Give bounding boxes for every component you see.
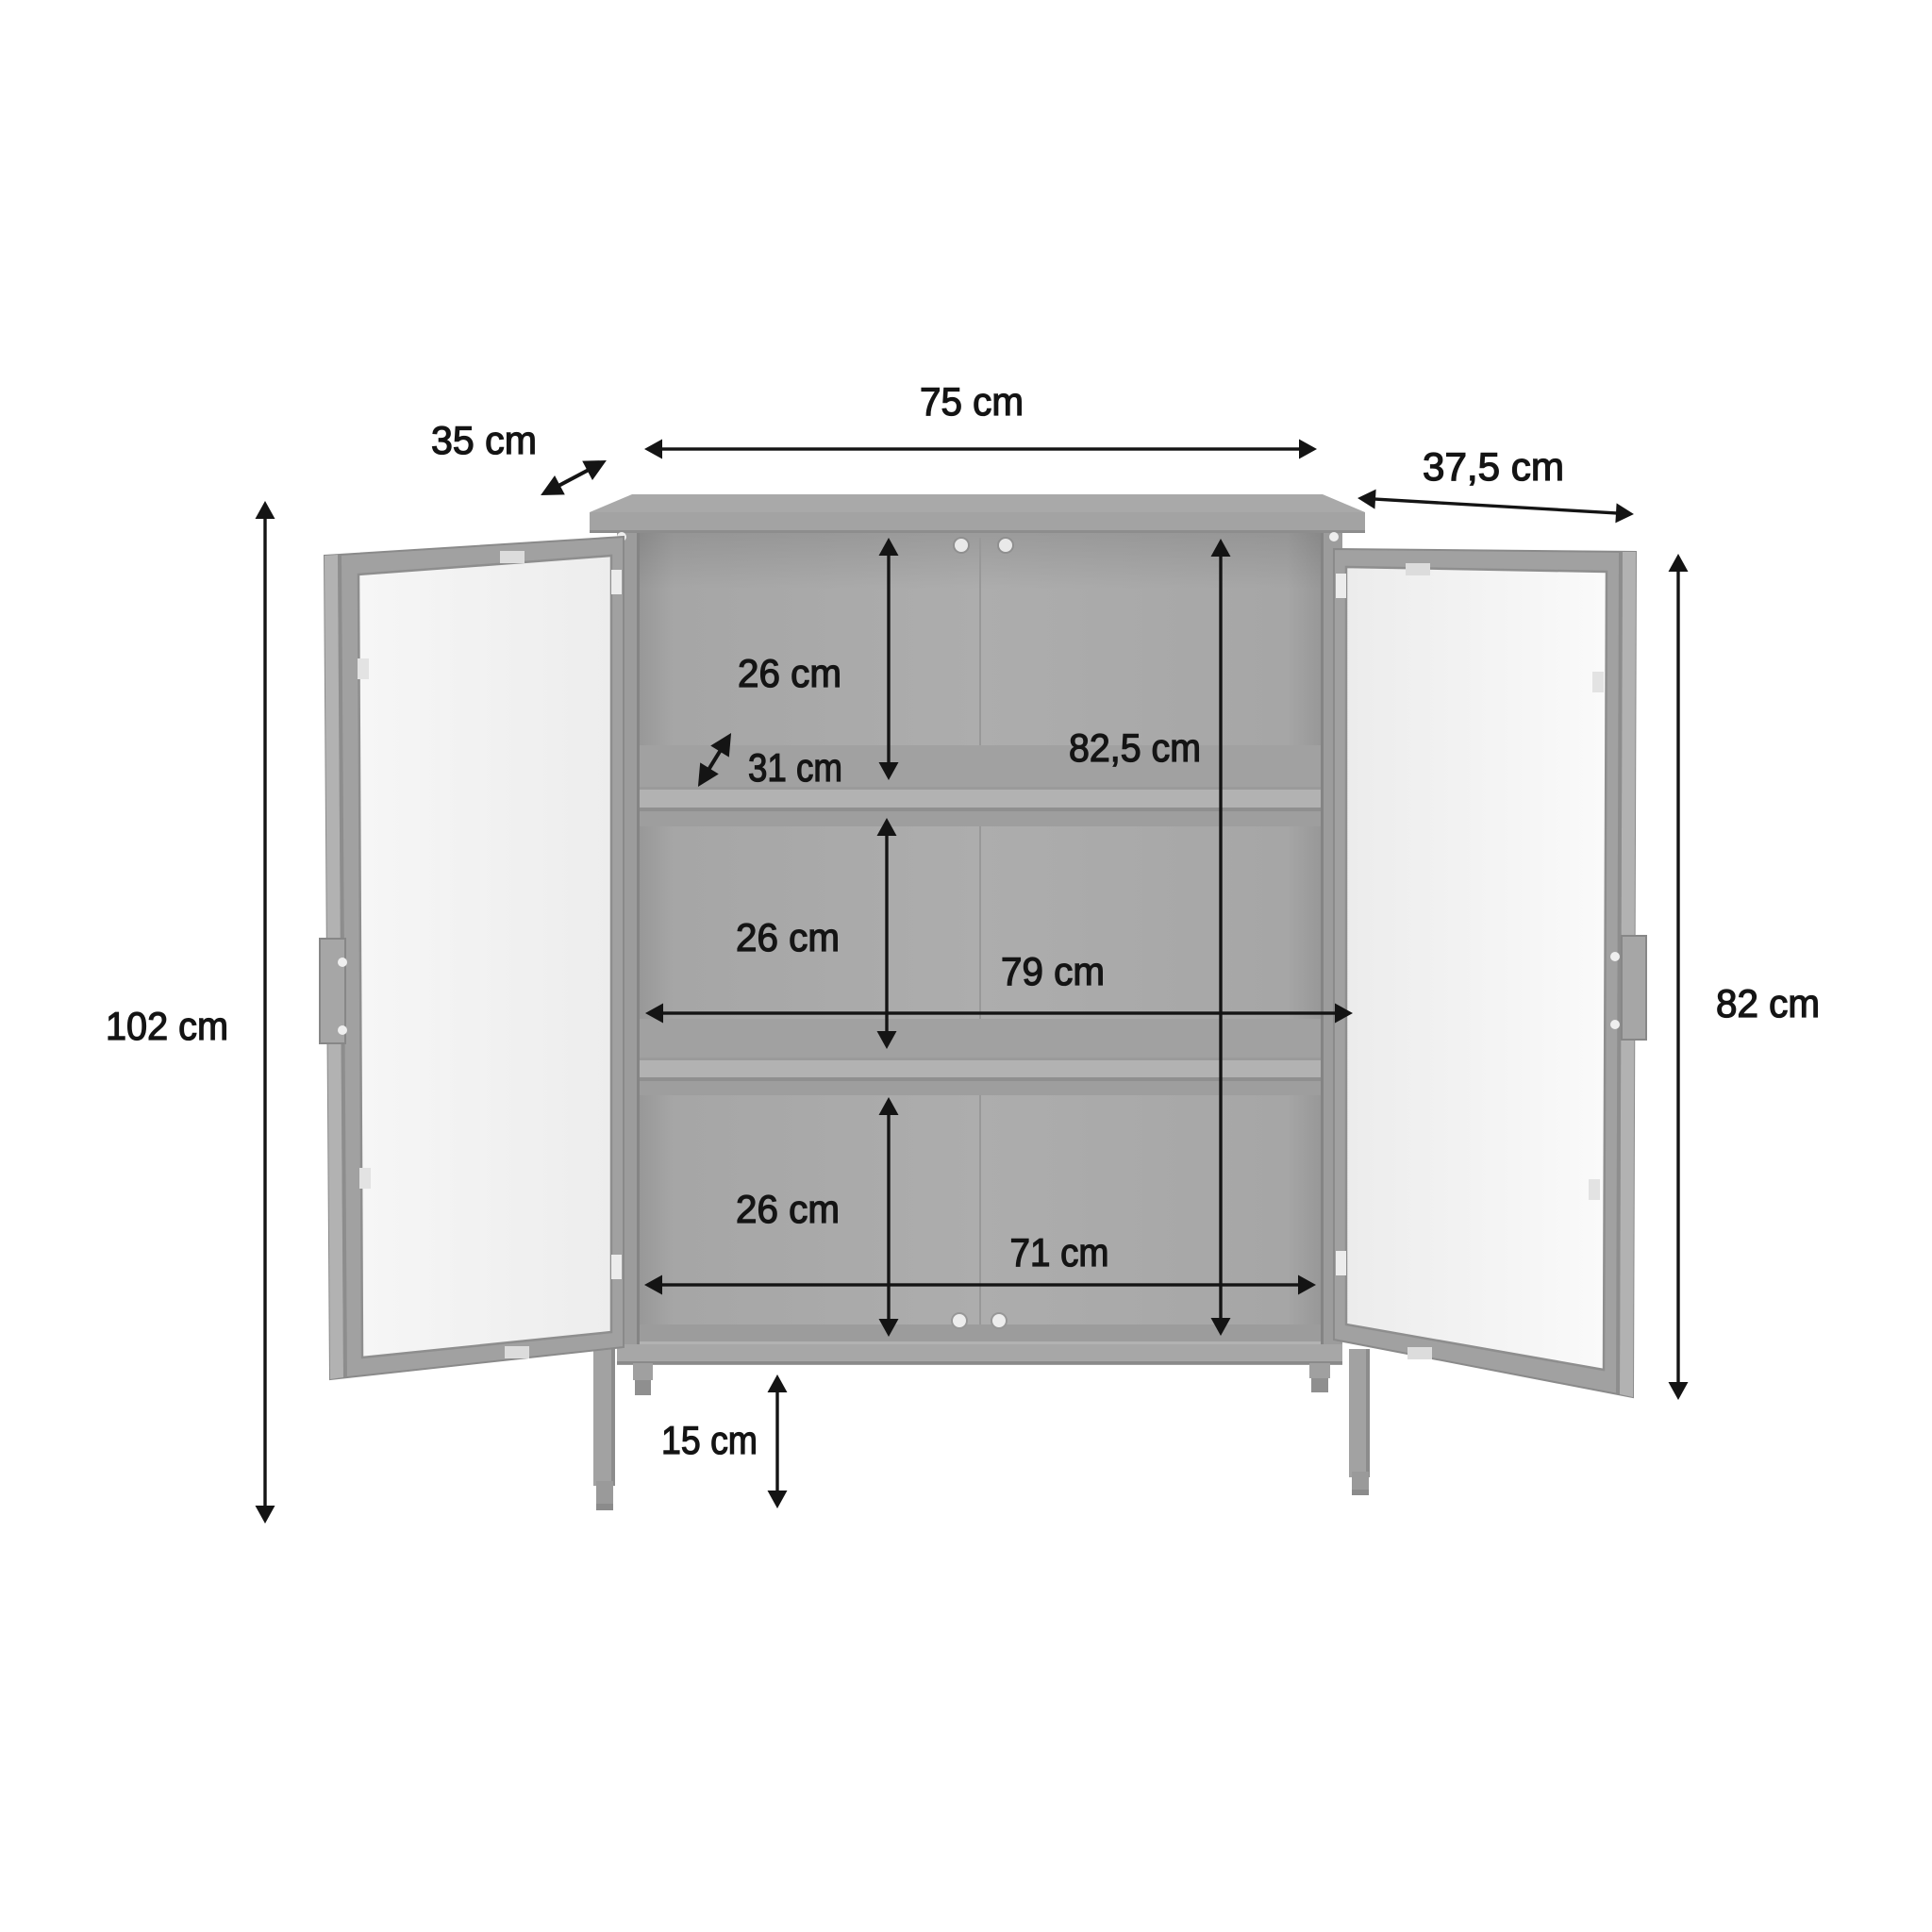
svg-text:82,5 cm: 82,5 cm	[1069, 725, 1201, 770]
svg-text:26 cm: 26 cm	[736, 1187, 840, 1231]
svg-text:82 cm: 82 cm	[1716, 981, 1820, 1025]
svg-text:31 cm: 31 cm	[748, 745, 842, 790]
svg-text:37,5 cm: 37,5 cm	[1423, 444, 1564, 489]
svg-text:102 cm: 102 cm	[106, 1004, 228, 1048]
svg-text:75 cm: 75 cm	[920, 379, 1024, 424]
svg-text:71 cm: 71 cm	[1010, 1230, 1109, 1274]
svg-text:79 cm: 79 cm	[1001, 949, 1105, 993]
svg-text:26 cm: 26 cm	[736, 915, 840, 959]
svg-text:26 cm: 26 cm	[738, 651, 841, 695]
svg-text:15 cm: 15 cm	[661, 1418, 758, 1462]
svg-text:35 cm: 35 cm	[431, 418, 537, 462]
